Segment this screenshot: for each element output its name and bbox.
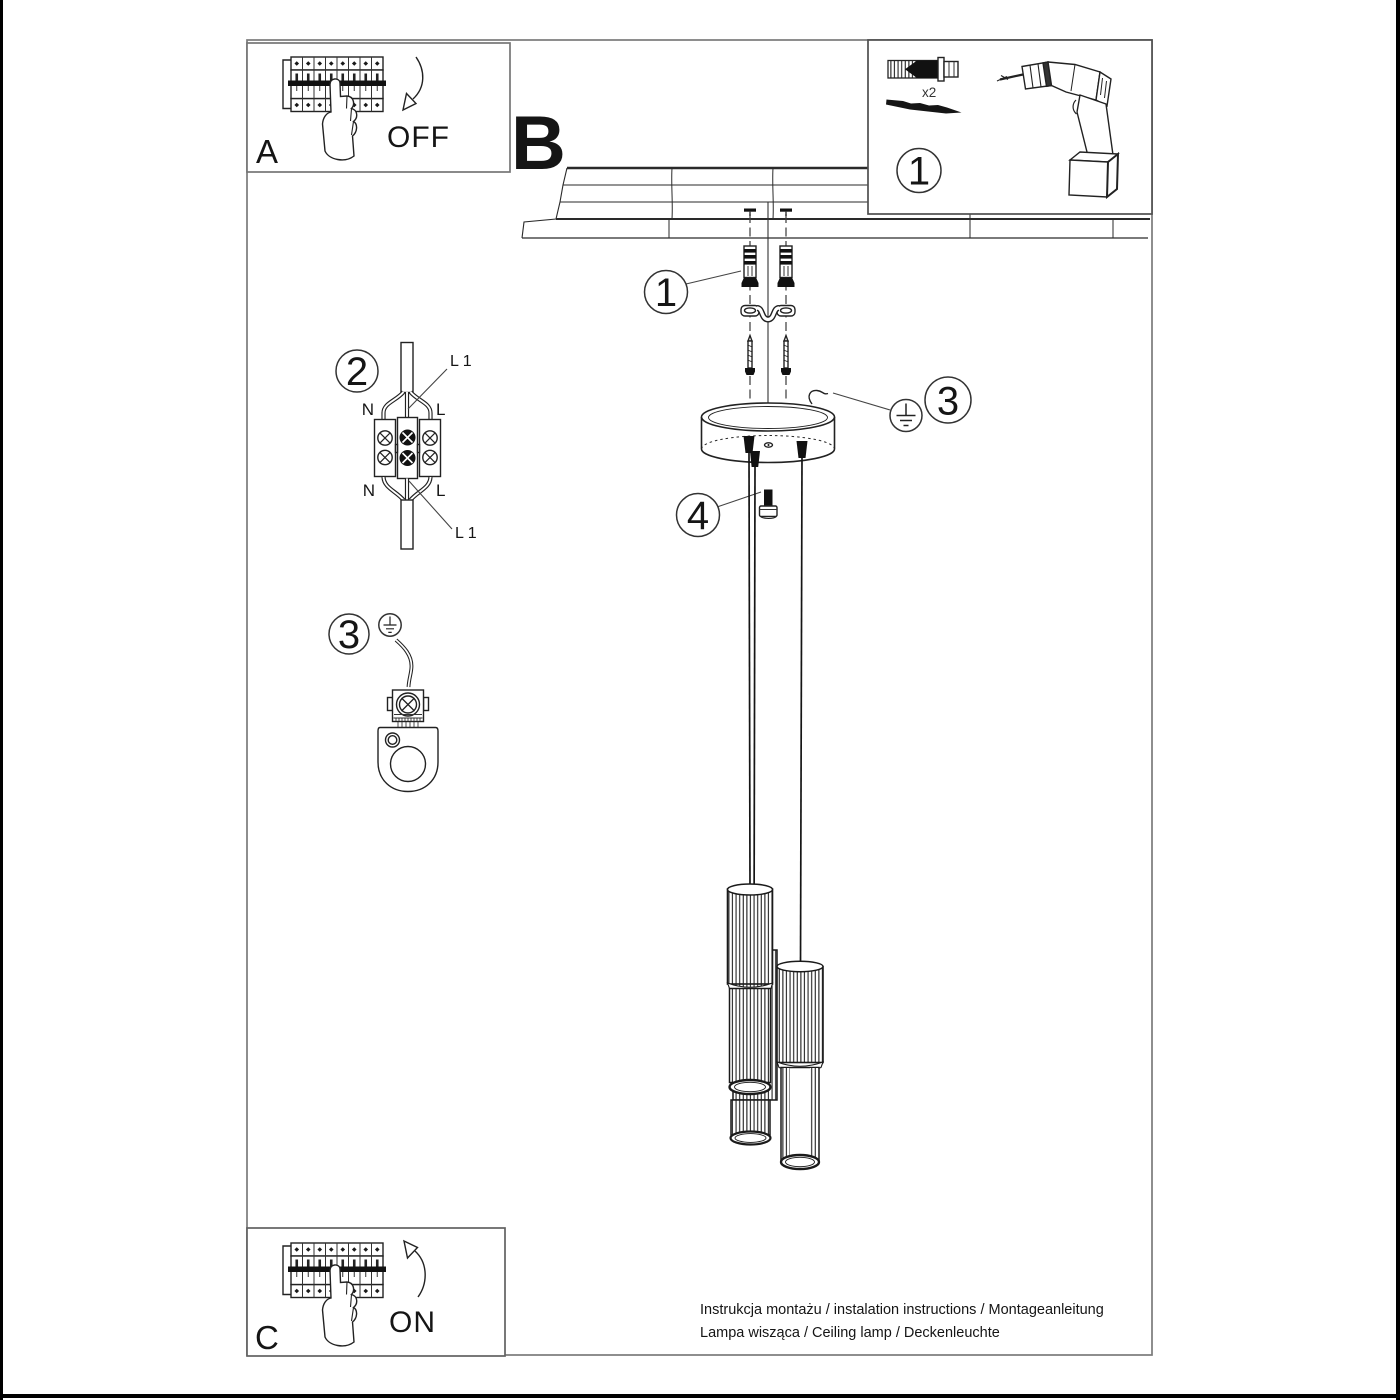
ground-clamp <box>388 690 429 722</box>
power-off-panel: OFF A <box>247 43 510 172</box>
live-top-label: L 1 <box>450 353 472 370</box>
ground-bracket <box>378 722 438 792</box>
top-cable <box>401 343 413 393</box>
neutral-top-label: N <box>362 400 374 419</box>
pendant-shades <box>728 884 824 1169</box>
wall-anchor-right <box>778 246 795 287</box>
ground-symbol-icon <box>890 400 922 432</box>
terminal-column-n <box>375 420 396 477</box>
top-wires <box>384 392 431 421</box>
terminal-callout-number: 2 <box>346 350 368 394</box>
footer-caption: Instrukcja montażu / instalation instruc… <box>700 1302 1104 1341</box>
tools-panel: x2 1 <box>868 40 1152 214</box>
mounting-screw-right <box>781 336 791 376</box>
wall-anchor-left <box>742 246 759 287</box>
footer-line-1: Instrukcja montażu / instalation instruc… <box>700 1302 1104 1318</box>
live-bottom-leader <box>409 481 452 529</box>
ground-symbol-small-icon <box>379 614 401 636</box>
footer-line-2: Lampa wisząca / Ceiling lamp / Deckenleu… <box>700 1325 1000 1341</box>
ground-leader-line <box>833 393 890 410</box>
line-top-label: L <box>436 400 445 419</box>
scan-edge-left <box>0 0 3 1400</box>
pendant-shade-front <box>728 884 773 1094</box>
section-b-letter: B <box>511 101 566 186</box>
diagram-canvas: x2 1 <box>0 0 1400 1400</box>
ground-wire <box>809 390 828 404</box>
instruction-sheet: x2 1 <box>0 0 1400 1400</box>
terminal-column-mid <box>398 418 418 479</box>
mounting-screw-left <box>745 336 755 376</box>
anchors-leader-line <box>686 271 741 284</box>
line-bottom-label: L <box>436 481 445 500</box>
ground-wire-detail <box>396 640 412 687</box>
terminal-block-figure: 2 L 1 N L N L L 1 <box>336 343 477 550</box>
on-label: ON <box>389 1306 436 1339</box>
neutral-bottom-label: N <box>363 481 375 500</box>
canopy <box>702 403 835 467</box>
scan-edge-right <box>1396 0 1400 1400</box>
live-bottom-label: L 1 <box>455 525 477 542</box>
grub-screw <box>760 490 778 519</box>
tools-callout-number: 1 <box>908 150 930 194</box>
scan-edge-bottom <box>0 1394 1400 1398</box>
ground-callout-number: 3 <box>937 380 959 424</box>
panel-c-letter: C <box>255 1319 279 1356</box>
wall-plug-icon <box>888 58 958 82</box>
anchor-count-label: x2 <box>922 85 936 100</box>
page-frame <box>247 40 1152 1355</box>
terminal-column-l <box>420 420 441 477</box>
ground-detail-callout-number: 3 <box>338 613 360 657</box>
panel-a-letter: A <box>256 133 278 170</box>
ground-terminal-figure: 3 <box>329 613 438 792</box>
mounting-assembly-figure: 1 3 4 <box>645 202 972 538</box>
anchors-callout-number: 1 <box>655 271 677 315</box>
power-on-panel: ON C <box>247 1228 505 1356</box>
pendant-shade-right <box>777 961 823 1169</box>
bottom-cable <box>401 500 413 549</box>
grub-screw-callout-number: 4 <box>687 494 709 538</box>
cable-gland-middle <box>750 451 760 467</box>
off-label: OFF <box>387 121 450 154</box>
